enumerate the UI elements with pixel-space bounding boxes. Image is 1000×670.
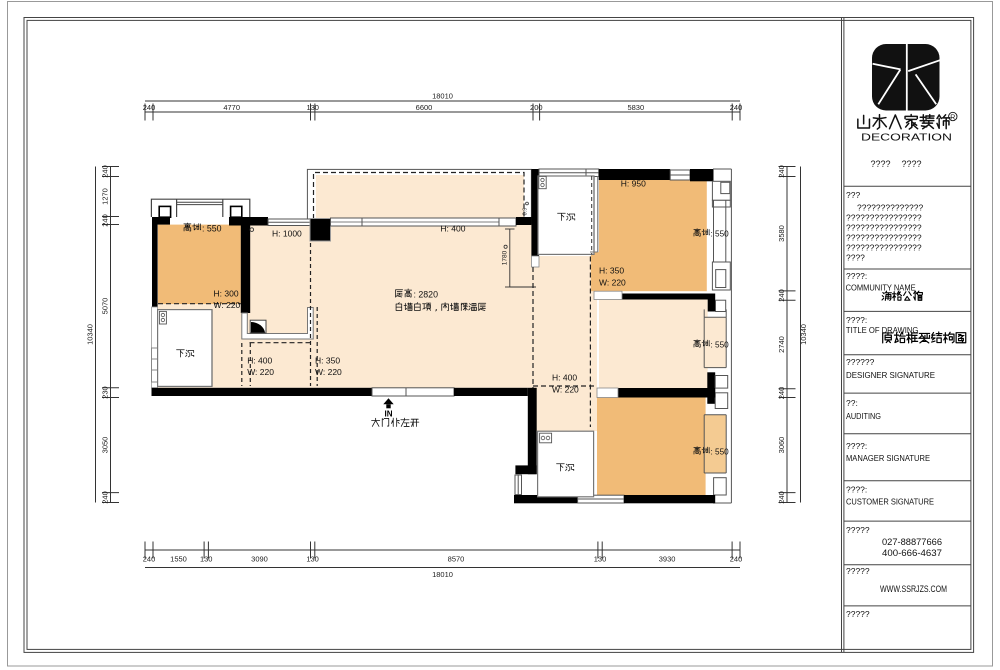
svg-text:: 550: : 550 — [711, 448, 730, 457]
svg-text:1780: 1780 — [502, 250, 509, 265]
svg-text:130: 130 — [594, 555, 607, 564]
svg-text:H: 950: H: 950 — [621, 179, 646, 189]
svg-text:10340: 10340 — [86, 324, 95, 345]
svg-text:DESIGNER SIGNATURE: DESIGNER SIGNATURE — [846, 370, 935, 380]
svg-text:????:: ????: — [846, 485, 867, 495]
svg-text:240: 240 — [101, 491, 110, 504]
svg-text:5830: 5830 — [627, 103, 644, 112]
svg-text:????:: ????: — [846, 315, 867, 325]
svg-text:????????????????: ???????????????? — [846, 243, 922, 253]
svg-text:COMMUNITY NAME: COMMUNITY NAME — [846, 282, 916, 292]
svg-text:3060: 3060 — [777, 437, 786, 454]
svg-text:R: R — [950, 114, 955, 121]
svg-text:240: 240 — [730, 555, 743, 564]
svg-text:3050: 3050 — [101, 437, 110, 454]
svg-text:10340: 10340 — [799, 324, 808, 345]
svg-text:240: 240 — [777, 165, 786, 178]
svg-text:H: 1000: H: 1000 — [272, 229, 302, 239]
svg-text:18010: 18010 — [432, 92, 453, 101]
svg-text:1270: 1270 — [101, 188, 110, 205]
svg-text:????: ???? — [846, 253, 865, 263]
svg-text:400-666-4637: 400-666-4637 — [882, 548, 942, 558]
svg-text:8570: 8570 — [448, 555, 465, 564]
svg-text:027-88877666: 027-88877666 — [882, 537, 942, 547]
svg-text:?????: ????? — [846, 566, 870, 576]
svg-text:H: 400: H: 400 — [247, 356, 272, 366]
svg-text:?????: ????? — [846, 609, 870, 619]
svg-text:W: 220: W: 220 — [247, 367, 274, 377]
svg-text:4770: 4770 — [223, 103, 240, 112]
svg-text:???: ??? — [846, 190, 860, 200]
svg-text:?????: ????? — [846, 525, 870, 535]
svg-text:: 550: : 550 — [202, 224, 222, 234]
svg-text:????:: ????: — [846, 441, 867, 451]
svg-text:240: 240 — [777, 289, 786, 302]
svg-text:H: 300: H: 300 — [214, 289, 239, 299]
svg-text:CUSTOMER SIGNATURE: CUSTOMER SIGNATURE — [846, 497, 934, 507]
svg-text:240: 240 — [143, 555, 156, 564]
svg-text:??????: ?????? — [846, 357, 875, 367]
svg-text:5070: 5070 — [101, 298, 110, 315]
svg-text:W: 220: W: 220 — [552, 385, 579, 395]
svg-text:????????????????: ???????????????? — [846, 233, 922, 243]
svg-text:240: 240 — [777, 491, 786, 504]
svg-text:130: 130 — [306, 103, 319, 112]
svg-text:DECORATION: DECORATION — [861, 133, 952, 144]
svg-text:MANAGER SIGNATURE: MANAGER SIGNATURE — [846, 453, 930, 463]
svg-text:??????????????: ?????????????? — [857, 203, 923, 213]
svg-text:240: 240 — [101, 165, 110, 178]
svg-text:H: 400: H: 400 — [440, 224, 465, 234]
svg-text:3580: 3580 — [777, 225, 786, 242]
svg-text:130: 130 — [306, 555, 319, 564]
svg-text:: 550: : 550 — [711, 230, 730, 239]
svg-text:230: 230 — [101, 386, 110, 399]
svg-text:W: 220: W: 220 — [599, 278, 626, 288]
svg-text:W: 220: W: 220 — [214, 300, 241, 310]
svg-text:AUDITING: AUDITING — [846, 411, 881, 421]
svg-text:1550: 1550 — [170, 555, 187, 564]
svg-text:H: 400: H: 400 — [552, 373, 577, 383]
svg-text:240: 240 — [101, 214, 110, 227]
svg-text:????: ???? — [871, 159, 891, 169]
svg-text:H: 350: H: 350 — [599, 266, 624, 276]
svg-text:??:: ??: — [846, 398, 858, 408]
svg-text:6600: 6600 — [416, 103, 433, 112]
svg-text:240: 240 — [777, 387, 786, 400]
svg-text:H: 350: H: 350 — [315, 356, 340, 366]
svg-text:????:: ????: — [846, 271, 867, 281]
svg-text:240: 240 — [143, 103, 156, 112]
svg-text:200: 200 — [530, 103, 543, 112]
svg-text:3090: 3090 — [251, 555, 268, 564]
svg-text:: 550: : 550 — [711, 341, 730, 350]
svg-text:????????????????: ???????????????? — [846, 213, 922, 223]
svg-text:130: 130 — [200, 555, 213, 564]
svg-text:3930: 3930 — [659, 555, 676, 564]
svg-text:240: 240 — [730, 103, 743, 112]
svg-text:WWW.SSRJZS.COM: WWW.SSRJZS.COM — [880, 584, 947, 594]
svg-text:W: 220: W: 220 — [315, 367, 342, 377]
svg-text:????: ???? — [902, 159, 922, 169]
svg-text:IN: IN — [385, 410, 393, 419]
svg-text:0.9: 0.9 — [523, 208, 529, 216]
svg-text:18010: 18010 — [432, 570, 453, 579]
svg-text:: 2820: : 2820 — [414, 290, 439, 300]
svg-text:2740: 2740 — [777, 336, 786, 353]
svg-text:????????????????: ???????????????? — [846, 223, 922, 233]
